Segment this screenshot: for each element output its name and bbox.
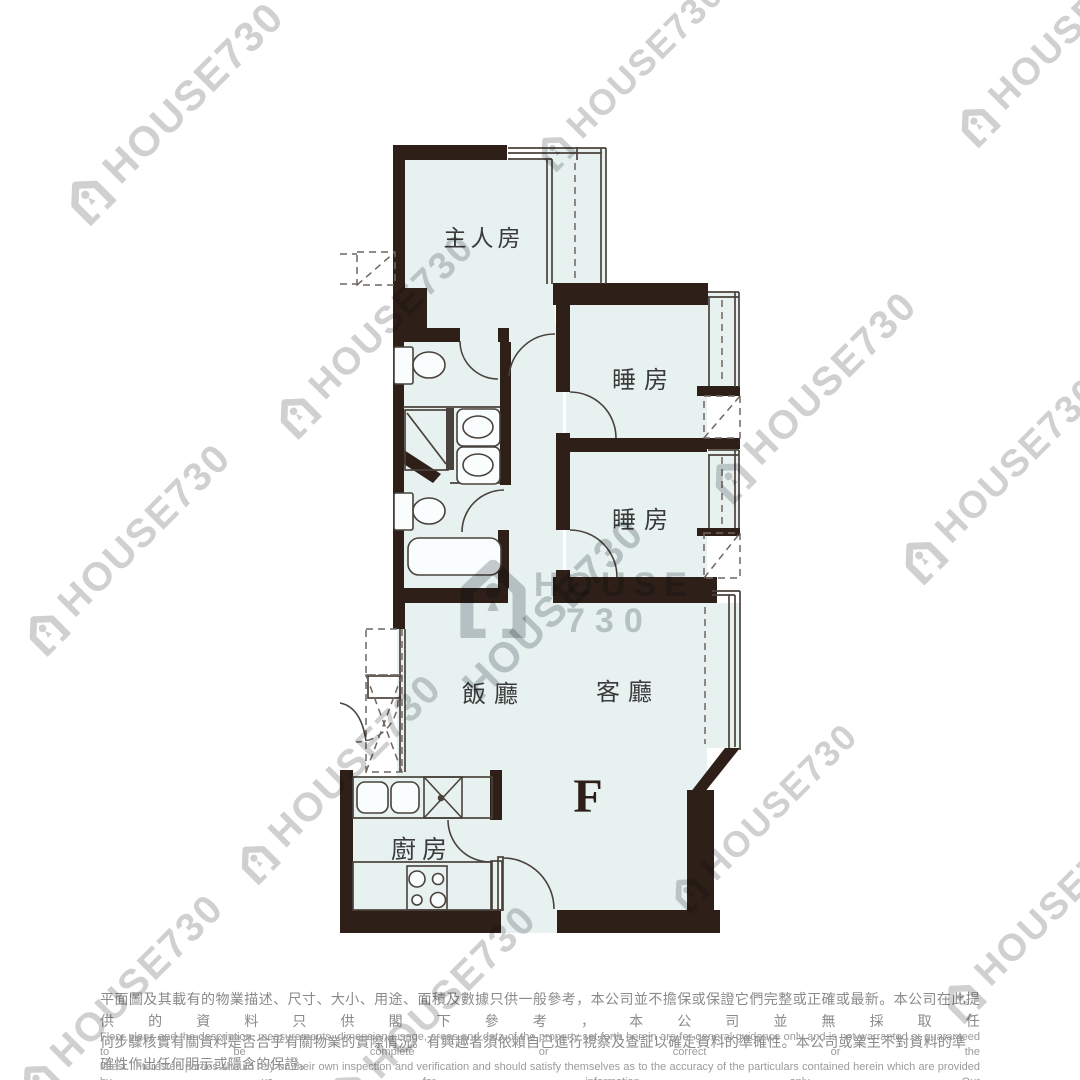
room-label-bedroom-1: 睡房 (612, 367, 676, 394)
entrance-door-leaf (498, 857, 503, 910)
room-label-bedroom-2: 睡房 (612, 507, 676, 534)
disclaimer-en-line2: latest. Interested parties should rely o… (100, 1060, 980, 1080)
kitchen-sink-icon (391, 782, 419, 813)
bathtub-icon (408, 538, 501, 575)
disclaimer-english: Floor plans and the description, measure… (100, 1030, 980, 1080)
unit-label: F (573, 770, 602, 823)
floor-plan-page: 主人房 睡房 睡房 飯廳 客廳 廚房 F HOUSE730 HOUSE730 H… (0, 0, 1080, 1080)
basin-icon (457, 409, 500, 446)
kitchen-sink-icon (357, 782, 388, 813)
dining-side-arc (340, 703, 366, 741)
disclaimer-zh-line1: 平面圖及其載有的物業描述、尺寸、大小、用途、面積及數據只供一般參考，本公司並不擔… (100, 989, 980, 1032)
room-label-master-bedroom: 主人房 (444, 225, 525, 251)
room-label-dining-room: 飯廳 (462, 681, 526, 708)
room-label-living-room: 客廳 (596, 679, 660, 706)
floor-fills (352, 148, 739, 933)
basin-icon (457, 447, 500, 484)
room-label-kitchen: 廚房 (391, 836, 453, 864)
appliance-space (366, 629, 402, 675)
floor-plan: 主人房 睡房 睡房 飯廳 客廳 廚房 F (0, 0, 1080, 1080)
disclaimer-en-line1: Floor plans and the description, measure… (100, 1030, 980, 1060)
